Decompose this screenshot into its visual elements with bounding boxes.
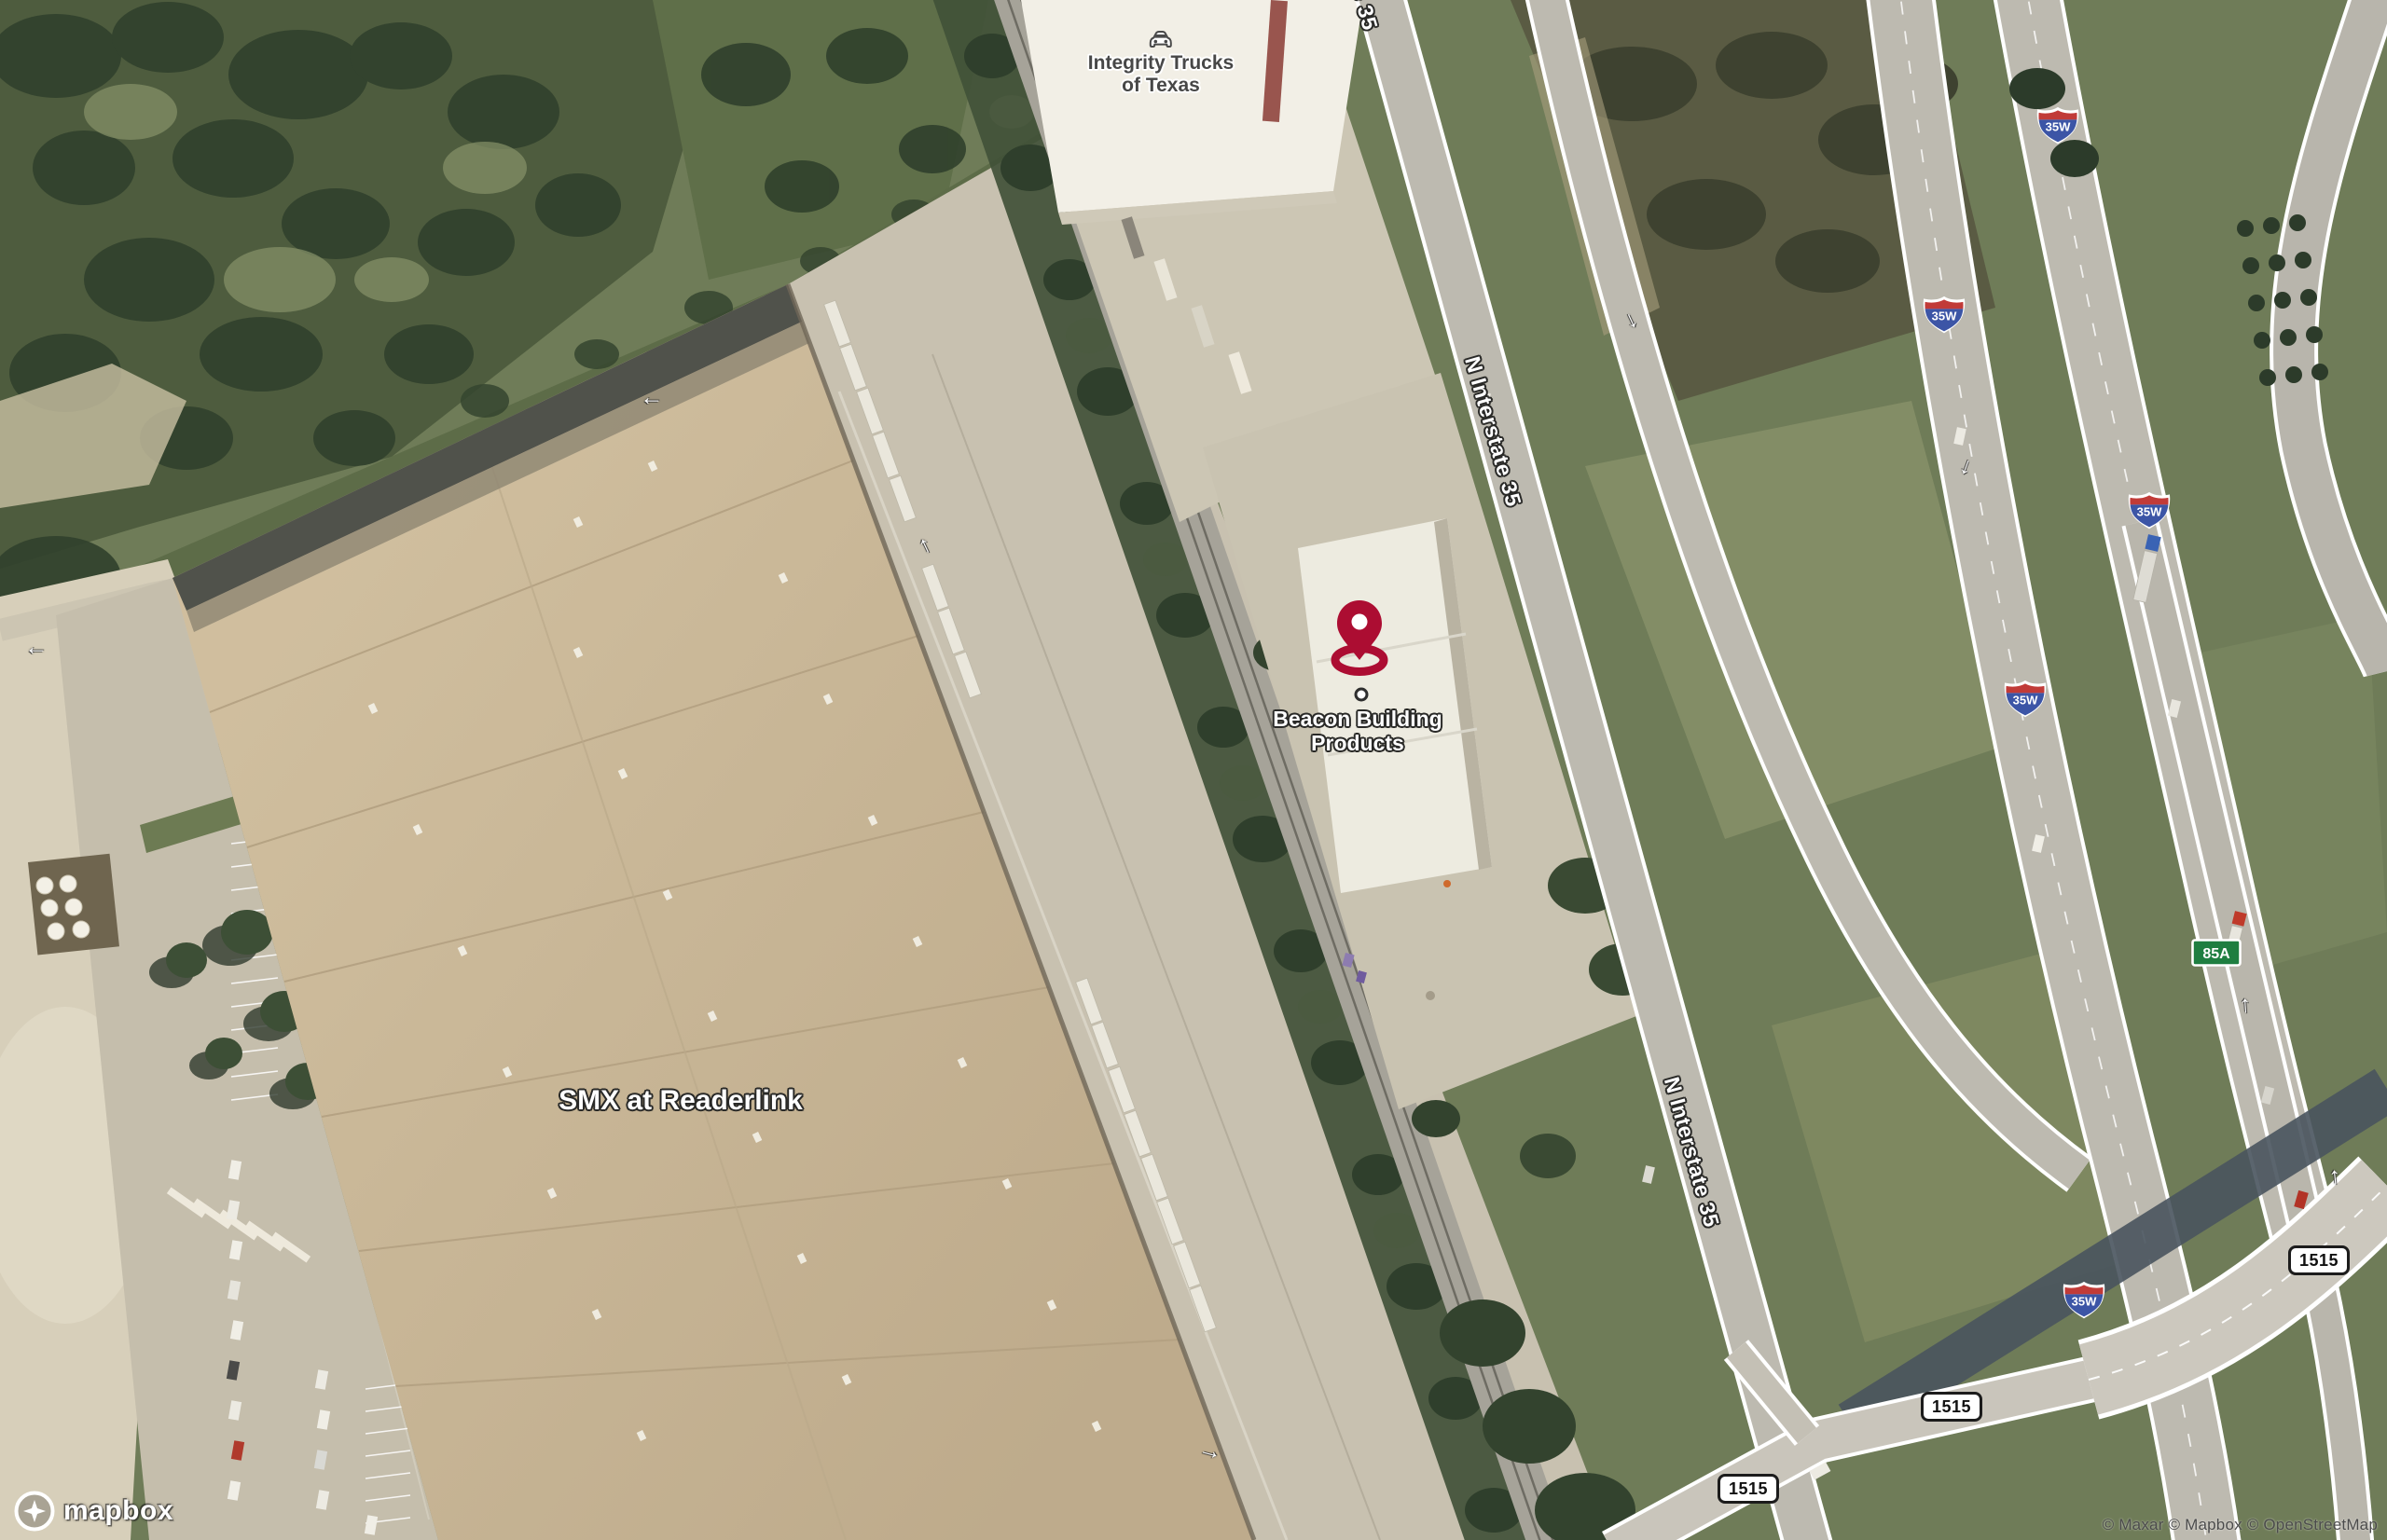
interstate-shield-35w: 35W <box>2128 492 2171 529</box>
mapbox-logo-icon <box>13 1490 56 1533</box>
interstate-shield-35w: 35W <box>2036 107 2079 144</box>
lane-arrow-icon: ↑ <box>638 395 665 407</box>
marker-label-beacon: Beacon Building Products <box>1273 707 1442 755</box>
mapbox-logo-text: mapbox <box>63 1495 173 1527</box>
building-label-smx: SMX at Readerlink <box>559 1085 803 1117</box>
map-attribution[interactable]: © Maxar © Mapbox © OpenStreetMap <box>2103 1516 2378 1534</box>
poi-label-line1: Integrity Trucks <box>1088 52 1234 75</box>
map-canvas[interactable]: Integrity Trucks of Texas SMX at Readerl… <box>0 0 2387 1540</box>
interstate-shield-35w: 35W <box>1923 296 1966 334</box>
lane-arrow-icon: ↑ <box>2327 1162 2341 1190</box>
location-pin-icon[interactable] <box>1329 598 1390 679</box>
interstate-shield-35w: 35W <box>2063 1282 2105 1319</box>
satellite-imagery <box>0 0 2387 1540</box>
shield-text: 85A <box>2202 946 2230 962</box>
route-shield-1515: 1515 <box>2288 1245 2350 1275</box>
route-shield-1515: 1515 <box>1718 1474 1779 1504</box>
marker-label-line2: Products <box>1273 731 1442 755</box>
shield-text: 35W <box>1932 309 1957 323</box>
shield-text: 35W <box>2137 505 2162 519</box>
shield-text: 35W <box>2046 120 2071 134</box>
shield-text: 35W <box>2072 1295 2097 1309</box>
poi-label-line2: of Texas <box>1088 75 1234 97</box>
car-icon <box>1145 28 1177 52</box>
lane-arrow-icon: ↑ <box>2239 991 2252 1019</box>
interstate-shield-35w: 35W <box>2004 681 2047 718</box>
lane-arrow-icon: ↑ <box>22 645 49 657</box>
mapbox-logo[interactable]: mapbox <box>13 1490 173 1533</box>
poi-label-integrity-trucks: Integrity Trucks of Texas <box>1088 28 1234 97</box>
marker-dot <box>1355 688 1369 702</box>
marker-label-line1: Beacon Building <box>1273 707 1442 731</box>
route-shield-85a: 85A <box>2191 939 2242 967</box>
route-shield-1515: 1515 <box>1921 1392 1982 1422</box>
shield-text: 35W <box>2013 694 2038 708</box>
